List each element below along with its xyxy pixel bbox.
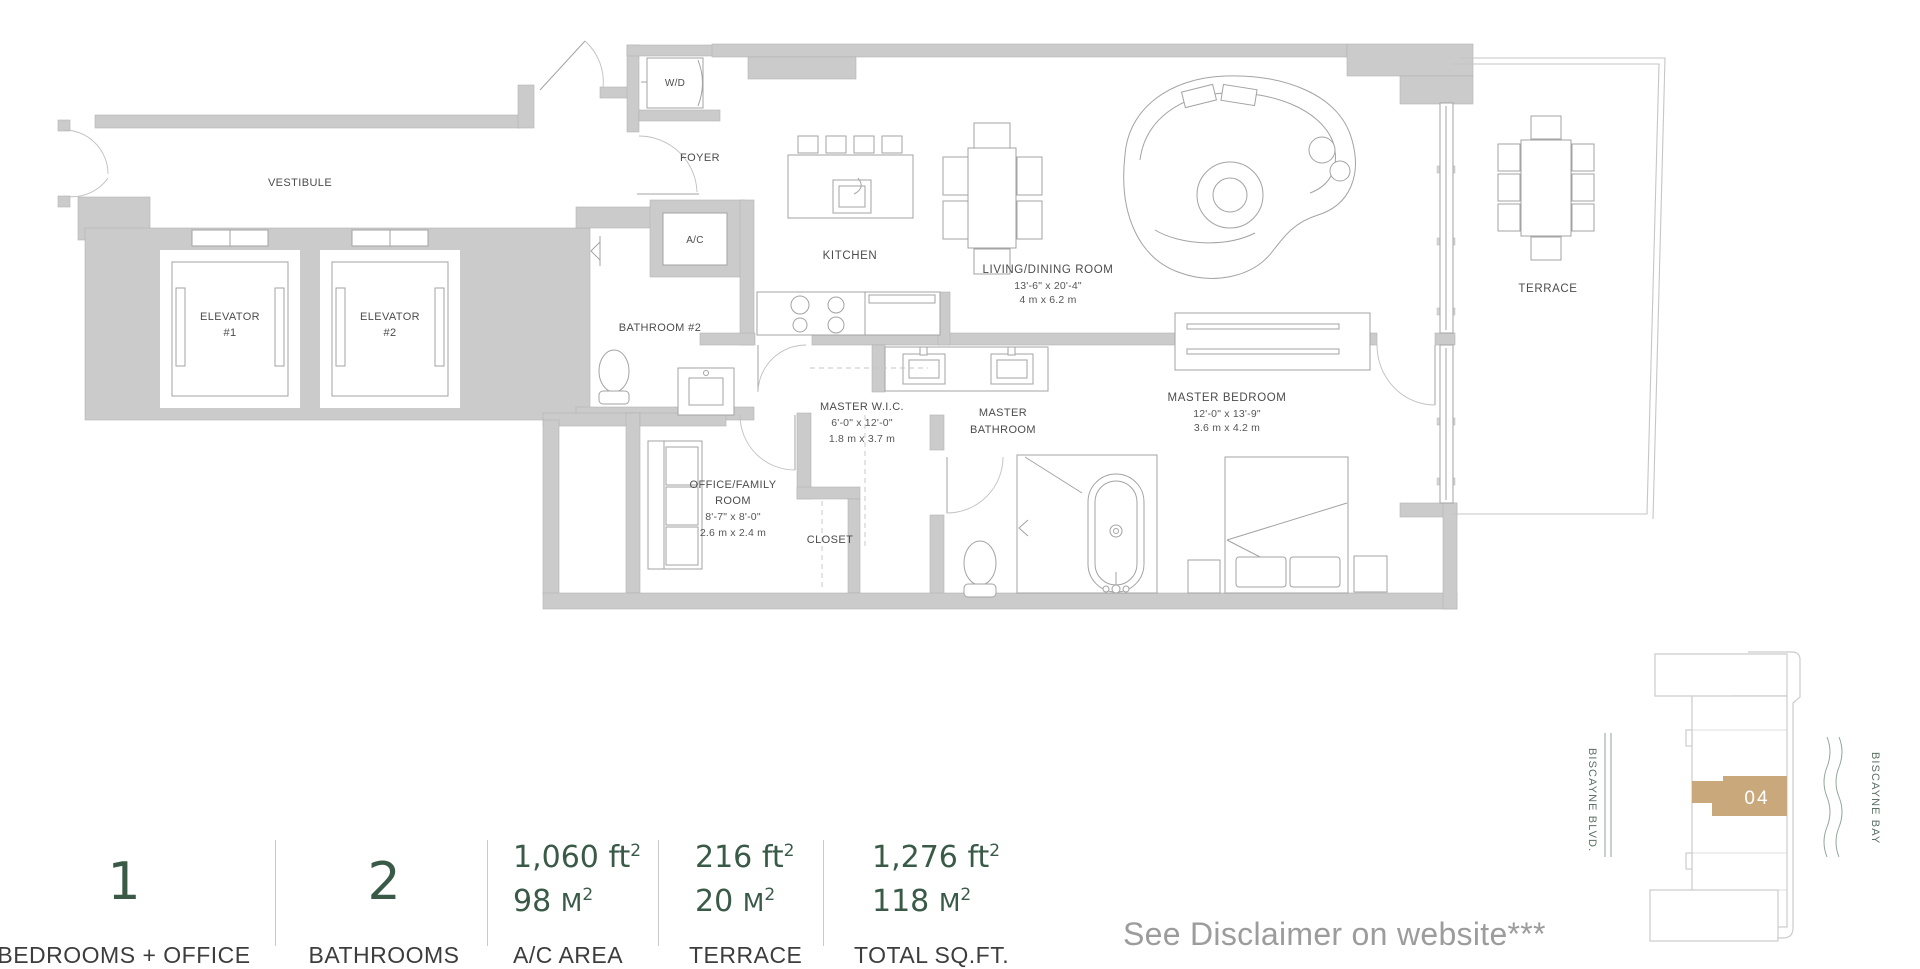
disclaimer-text: See Disclaimer on website***: [1123, 916, 1546, 953]
room-label-office-1: OFFICE/FAMILY: [690, 479, 777, 491]
terrace-table: [1498, 116, 1594, 260]
master-bath-fixtures: [964, 455, 1157, 597]
room-label-master-bath-1: MASTER: [979, 407, 1027, 419]
keyplan-unit-number: 04: [1744, 788, 1769, 809]
room-label-living: LIVING/DINING ROOM: [983, 264, 1114, 276]
room-label-terrace: TERRACE: [1518, 283, 1577, 295]
kitchen-counter: [757, 292, 940, 335]
room-label-wd: W/D: [665, 78, 685, 89]
room-label-closet: CLOSET: [807, 534, 853, 546]
room-dim-living-m: 4 m x 6.2 m: [1019, 294, 1076, 306]
room-label-kitchen: KITCHEN: [823, 250, 878, 262]
room-dim-master-bedroom-ft: 12'-0" x 13'-9": [1193, 408, 1261, 420]
room-label-office-2: ROOM: [715, 495, 751, 507]
room-dim-office-m: 2.6 m x 2.4 m: [700, 527, 766, 539]
keyplan: 04 BISCAYNE BLVD. BISCAYNE BAY: [1586, 652, 1881, 941]
bay-waves-icon: [1836, 737, 1842, 857]
bay-waves-icon: [1824, 737, 1830, 857]
dining-table: [943, 123, 1042, 274]
room-label-foyer: FOYER: [680, 152, 720, 164]
keyplan-bay-label: BISCAYNE BAY: [1869, 752, 1881, 844]
room-label-master-bedroom: MASTER BEDROOM: [1168, 392, 1287, 404]
room-dim-living-ft: 13'-6" x 20'-4": [1014, 280, 1082, 292]
room-label-elevator1-num: #1: [223, 327, 236, 339]
master-vanity: [885, 347, 1048, 391]
room-label-wic: MASTER W.I.C.: [820, 401, 904, 413]
floorplan-canvas: VESTIBULE W/D FOYER ELEVATOR #1 ELEVATOR…: [0, 0, 1920, 964]
office-sofa: [648, 441, 702, 569]
bathroom2-fixtures: [599, 350, 734, 415]
room-label-elevator2: ELEVATOR: [360, 311, 420, 323]
room-dim-master-bedroom-m: 3.6 m x 4.2 m: [1194, 422, 1260, 434]
room-dim-office-ft: 8'-7" x 8'-0": [705, 511, 761, 523]
curved-sofa: [1124, 76, 1356, 279]
keyplan-street-label: BISCAYNE BLVD.: [1586, 748, 1598, 852]
master-bed: [1175, 313, 1387, 593]
room-dim-wic-ft: 6'-0" x 12'-0": [831, 417, 893, 429]
room-label-master-bath-2: BATHROOM: [970, 424, 1036, 436]
room-label-ac: A/C: [686, 235, 704, 246]
room-label-elevator1: ELEVATOR: [200, 311, 260, 323]
room-label-bathroom2: BATHROOM #2: [619, 322, 701, 334]
kitchen-island: [788, 136, 913, 218]
room-label-elevator2-num: #2: [383, 327, 396, 339]
room-dim-wic-m: 1.8 m x 3.7 m: [829, 433, 895, 445]
window-wall: [1440, 103, 1453, 503]
room-label-vestibule: VESTIBULE: [268, 177, 332, 189]
